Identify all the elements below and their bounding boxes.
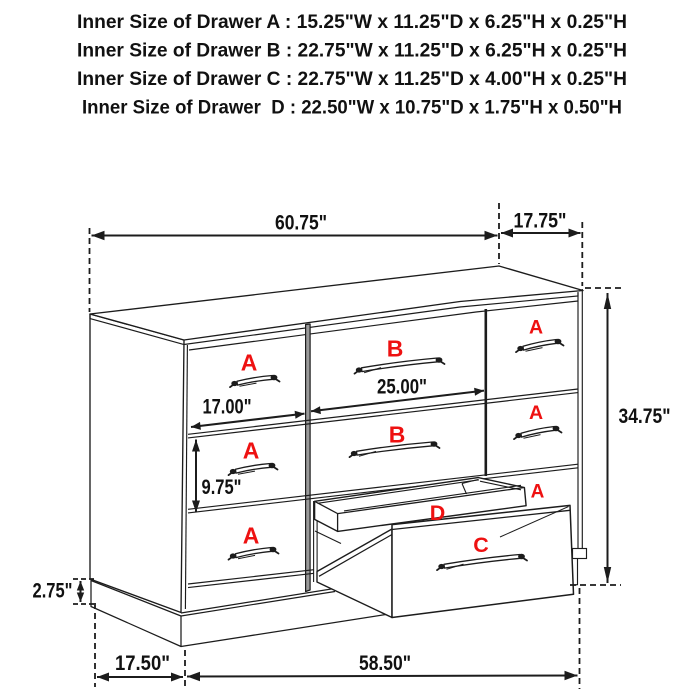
svg-text:A: A xyxy=(531,482,545,503)
svg-text:A: A xyxy=(529,402,543,424)
svg-text:34.75": 34.75" xyxy=(619,405,671,428)
svg-text:2.75": 2.75" xyxy=(33,580,73,603)
svg-text:17.00": 17.00" xyxy=(203,396,252,419)
svg-text:D: D xyxy=(430,501,446,525)
svg-text:17.50": 17.50" xyxy=(115,652,170,675)
svg-text:A: A xyxy=(243,438,260,464)
svg-text:9.75": 9.75" xyxy=(202,476,242,499)
svg-text:Inner Size of Drawer C : 22.75: Inner Size of Drawer C : 22.75"W x 11.25… xyxy=(77,69,627,90)
svg-text:25.00": 25.00" xyxy=(377,376,427,399)
svg-text:Inner Size of Drawer B : 22.75: Inner Size of Drawer B : 22.75"W x 11.25… xyxy=(77,41,627,62)
svg-text:Inner Size of Drawer A : 15.25: Inner Size of Drawer A : 15.25"W x 11.25… xyxy=(77,12,627,33)
svg-text:Inner Size of Drawer D : 22.5: Inner Size of Drawer D : 22.50"W x 10.75… xyxy=(82,97,622,118)
svg-text:58.50": 58.50" xyxy=(359,652,411,675)
svg-text:60.75": 60.75" xyxy=(275,212,327,235)
svg-text:A: A xyxy=(241,350,258,376)
svg-text:17.75": 17.75" xyxy=(514,210,567,233)
svg-text:A: A xyxy=(529,317,543,339)
svg-text:B: B xyxy=(387,336,404,362)
svg-text:A: A xyxy=(243,523,260,549)
svg-text:C: C xyxy=(473,533,489,557)
svg-text:B: B xyxy=(389,422,406,448)
